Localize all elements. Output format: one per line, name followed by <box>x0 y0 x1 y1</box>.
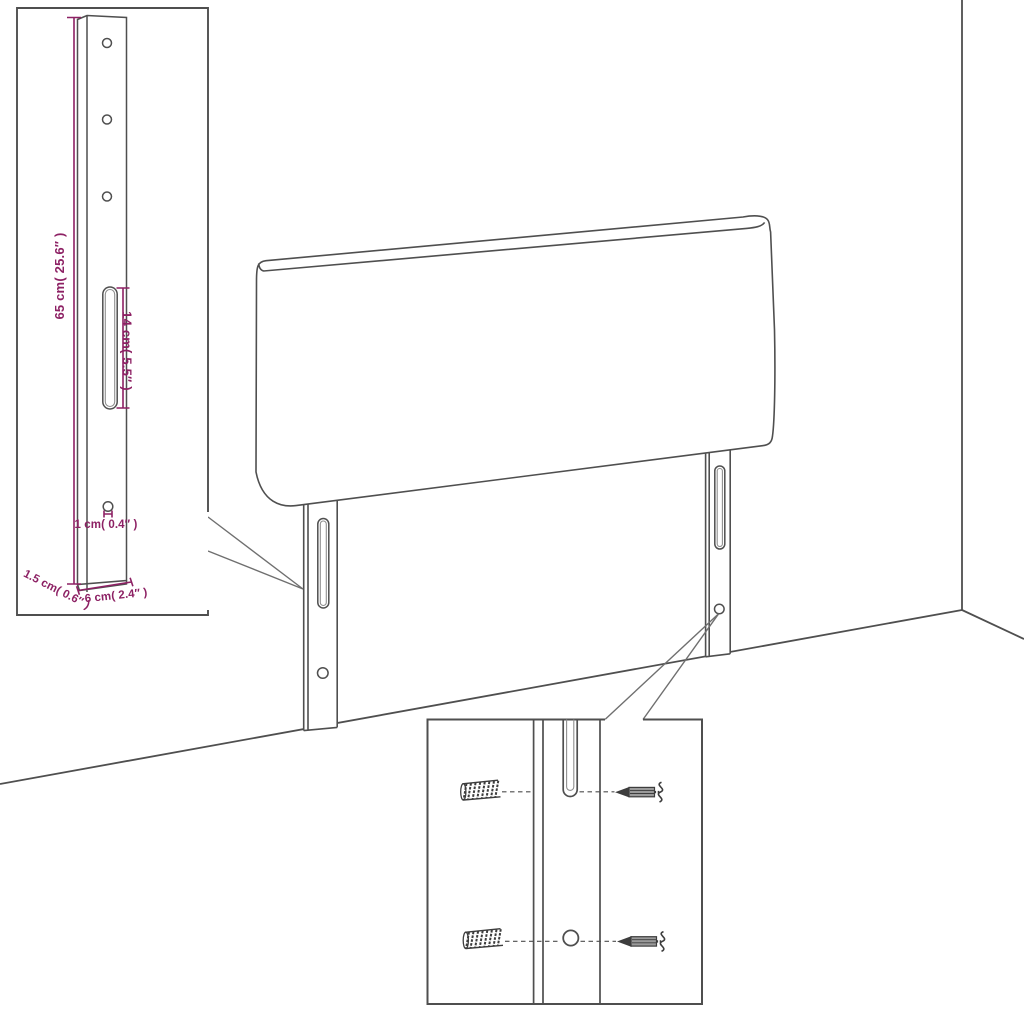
product-dimension-diagram: 65 cm( 25.6″ ) 14 cm( 5.5″ ) 1 cm( 0.4″ … <box>0 0 1024 1024</box>
leg-detail-hole-bottom <box>103 192 112 201</box>
inset-mounting-detail <box>428 720 703 1005</box>
callout-line <box>208 551 303 589</box>
leg-detail-hole-middle <box>103 115 112 124</box>
dim-label-hole-diameter: 1 cm( 0.4″ ) <box>75 519 138 531</box>
headboard-panel <box>256 216 775 506</box>
leg-detail-body <box>78 16 127 585</box>
callout-line <box>605 614 719 720</box>
floor-line-right <box>962 610 1024 639</box>
leg-detail-hole-top <box>103 39 112 48</box>
callout-bottom-inset <box>605 614 719 720</box>
inset-leg-detail: 65 cm( 25.6″ ) 14 cm( 5.5″ ) 1 cm( 0.4″ … <box>17 8 208 615</box>
callout-line <box>643 614 719 720</box>
callout-line <box>208 517 303 589</box>
leg-detail-small-hole <box>103 502 113 512</box>
callout-left-inset <box>208 517 303 589</box>
dim-label-slot-length: 14 cm( 5.5″ ) <box>120 311 135 391</box>
left-leg-slot-inner-line <box>320 521 326 606</box>
right-leg-slot-inner-line <box>717 469 722 547</box>
dim-label-height: 65 cm( 25.6″ ) <box>52 232 67 319</box>
headboard-panel-outline <box>256 216 775 506</box>
left-leg-screw-hole <box>318 668 329 679</box>
right-leg-screw-hole <box>715 604 725 614</box>
diagram-canvas: 65 cm( 25.6″ ) 14 cm( 5.5″ ) 1 cm( 0.4″ … <box>0 0 1024 1024</box>
